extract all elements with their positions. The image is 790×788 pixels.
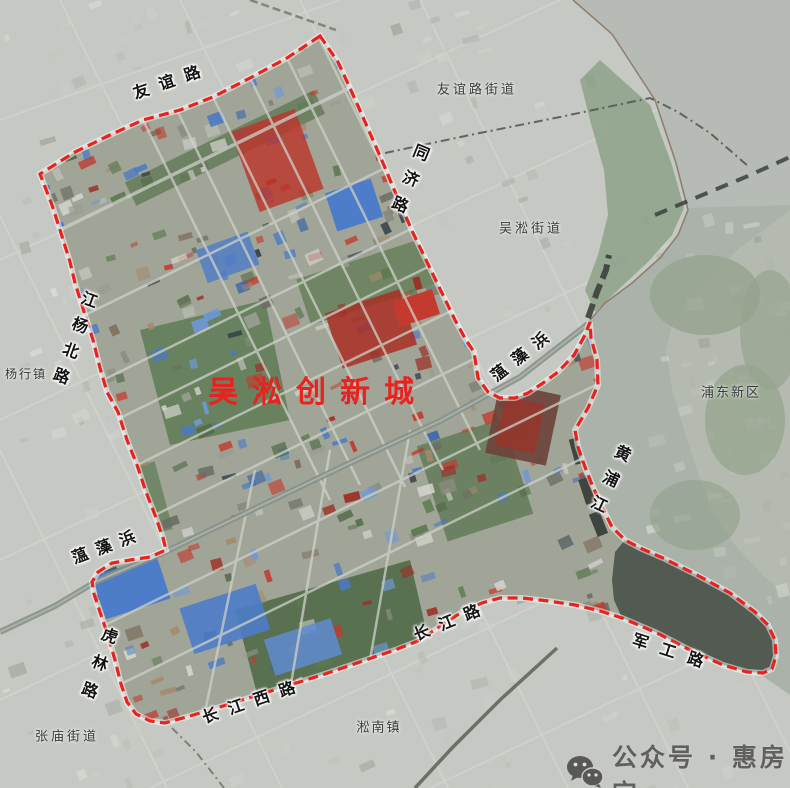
label-wenzaobang-southwest: 蕰藻浜 [70,526,146,567]
label-songnan-town: 淞南镇 [356,722,401,735]
label-youyi-road-subdistrict: 友谊路街道 [437,84,517,97]
label-wusong-subdistrict: 吴淞街道 [499,223,563,236]
label-wenzaobang-northeast: 蕰藻浜 [488,324,559,385]
label-yanghang-town: 杨行镇 [5,368,47,380]
satellite-map: 吴淞创新城 公众号 · 惠房宝 友谊路友谊路街道同济路吴淞街道江杨北路杨行镇蕰藻… [0,0,790,788]
label-pudong-new-district: 浦东新区 [701,387,761,400]
region-title: 吴淞创新城 [208,367,428,411]
label-youyi-road: 友谊路 [131,60,213,102]
label-jiangyang-north-road: 江杨北路 [46,289,98,396]
label-zhangmiao-subdistrict: 张庙街道 [35,731,99,744]
label-tongji-road: 同济路 [384,141,430,225]
watermark: 公众号 · 惠房宝 [566,738,790,788]
label-jungong-road: 军工路 [630,632,718,674]
label-hulin-road: 虎林路 [74,624,119,711]
label-huangpu-river: 黄浦江 [582,442,632,525]
label-changjiang-road: 长江路 [411,598,492,643]
labels-layer: 吴淞创新城 公众号 · 惠房宝 友谊路友谊路街道同济路吴淞街道江杨北路杨行镇蕰藻… [0,0,790,788]
label-changjiang-west-road: 长江西路 [200,676,307,726]
wechat-icon [566,755,604,788]
watermark-text: 公众号 · 惠房宝 [612,738,790,788]
